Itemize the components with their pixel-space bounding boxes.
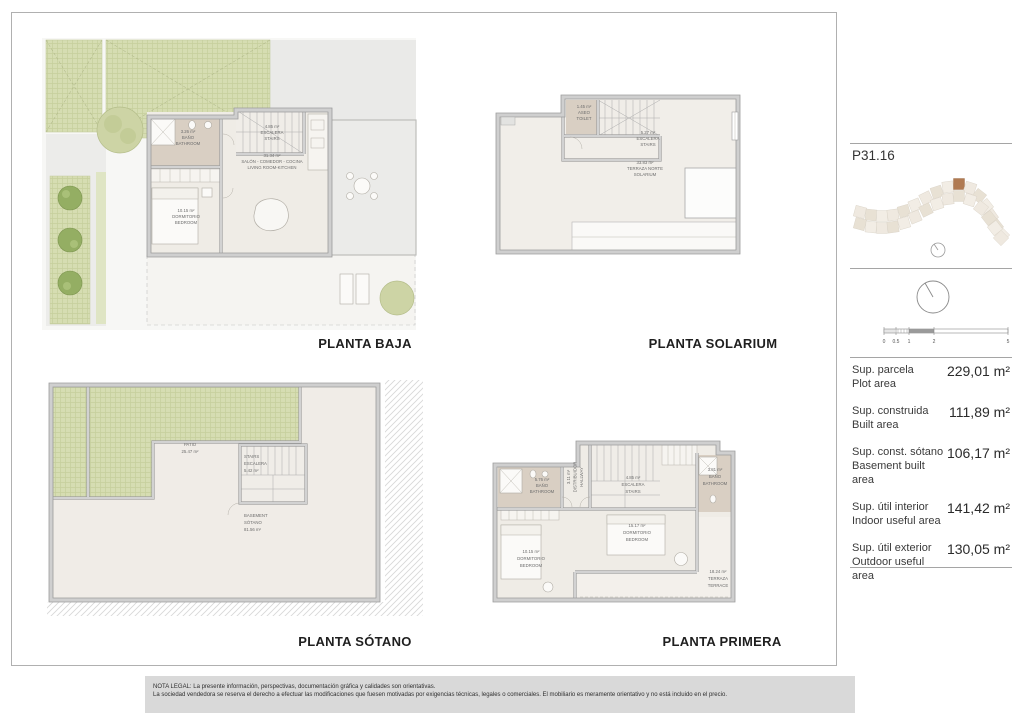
tree	[97, 107, 143, 153]
area-row-outdoor-useful: Sup. útil exterior Outdoor useful area 1…	[852, 541, 1010, 583]
area-row-indoor-useful: Sup. útil interior Indoor useful area 14…	[852, 500, 1010, 528]
tree	[380, 281, 414, 315]
room-label-es: BAÑO	[536, 483, 549, 488]
area-label-en: Built area	[852, 418, 928, 432]
room-label-es: BAÑO	[182, 135, 195, 140]
room-label-en: LIVING ROOM-KITCHEN	[248, 165, 297, 170]
room-label-area: 5.42 m²	[244, 468, 259, 473]
room-label-es: SALÓN - COMEDOR - COCINA	[241, 159, 302, 164]
area-label-en: Plot area	[852, 377, 914, 391]
room-label-es: ESCALERA	[622, 482, 645, 487]
area-row-built: Sup. construida Built area 111,89 m²	[852, 404, 1010, 432]
title-planta-primera: PLANTA PRIMERA	[597, 634, 847, 649]
room-label-es: ASEO	[578, 110, 591, 115]
room-label-l2: ESCALERA	[244, 461, 267, 466]
sidebar-separator	[850, 567, 1012, 568]
sidebar-separator	[850, 143, 1012, 144]
area-label-es: Sup. parcela	[852, 363, 914, 377]
room-label-area: 3.81 m²	[708, 467, 723, 472]
room-label-en: STAIRS	[625, 489, 640, 494]
highlighted-unit	[954, 179, 965, 190]
legal-note: NOTA LEGAL: La presente información, per…	[145, 676, 855, 713]
room-label-en: BATHROOM	[703, 481, 728, 486]
compass-and-scale: 0 0.5 1 2 5	[850, 270, 1014, 355]
plan-planta-primera: 5.76 m² BAÑO BATHROOM 3.11 m² DISTRIBUID…	[485, 437, 757, 609]
sotano-building	[47, 380, 423, 616]
scale-tick-label: 1	[908, 339, 911, 345]
sidebar-separator	[850, 268, 1012, 269]
scale-bar: 0 0.5 1 2 5	[883, 327, 1010, 345]
north-arrow-icon	[917, 281, 949, 313]
area-row-plot: Sup. parcela Plot area 229,01 m²	[852, 363, 1010, 391]
room-label-area: 4.85 m²	[265, 124, 280, 129]
plan-planta-solarium: 1.45 m² ASEO TOILET 5.27 m² ESCALERA STA…	[460, 80, 760, 280]
room-label-es: TERRAZA	[708, 576, 728, 581]
room-label-en: TOILET	[577, 116, 592, 121]
area-label-en: Basement built area	[852, 459, 947, 487]
room-label-en: SOLARIUM	[634, 172, 657, 177]
room-label-area: 81.56 m²	[244, 527, 262, 532]
area-label-es: Sup. const. sótano	[852, 445, 947, 459]
room-label-area: 1.45 m²	[577, 104, 592, 109]
area-value: 141,42 m²	[947, 500, 1010, 516]
area-value: 106,17 m²	[947, 445, 1010, 461]
room-label-es: DORMITORIO	[517, 556, 546, 561]
room-label-area: 15.17 m²	[629, 523, 647, 528]
scale-tick-label: 5	[1007, 339, 1010, 345]
room-label-es: DISTRIBUIDOR	[573, 462, 578, 493]
primera-building	[495, 443, 733, 600]
room-label-area: 18.24 m²	[710, 569, 728, 574]
area-label-en: Indoor useful area	[852, 514, 941, 528]
room-label-es: BAÑO	[709, 474, 722, 479]
solarium-building	[498, 97, 738, 252]
room-label-area: 31.34 m²	[264, 153, 282, 158]
room-label-en: HALLWAY	[579, 467, 584, 487]
room-label-es: DORMITORIO	[172, 214, 201, 219]
scale-tick-label: 2	[933, 339, 936, 345]
room-label-en: BATHROOM	[530, 489, 555, 494]
site-plan-locator	[850, 162, 1014, 268]
title-planta-baja: PLANTA BAJA	[240, 336, 490, 351]
bush	[58, 228, 82, 252]
room-label-en: TERRACE	[708, 583, 729, 588]
room-label-es: PATIO	[184, 442, 197, 447]
room-label-area: 5.76 m²	[535, 477, 550, 482]
area-row-basement-built: Sup. const. sótano Basement built area 1…	[852, 445, 1010, 487]
room-label-l2: SÓTANO	[244, 520, 262, 525]
room-label-en: BATHROOM	[176, 141, 201, 146]
room-label-area: 10.15 m²	[178, 208, 196, 213]
area-value: 229,01 m²	[947, 363, 1010, 379]
room-label-area: 5.27 m²	[641, 130, 656, 135]
room-label-en: BEDROOM	[520, 563, 543, 568]
title-planta-solarium: PLANTA SOLARIUM	[588, 336, 838, 351]
sidebar-separator	[850, 357, 1012, 358]
area-value: 111,89 m²	[949, 404, 1010, 420]
area-label-en: Outdoor useful area	[852, 555, 947, 583]
room-label-l1: BASEMENT	[244, 513, 268, 518]
room-label-area: 4.85 m²	[626, 475, 641, 480]
unit-chain	[853, 179, 1010, 246]
legal-note-line2: La sociedad vendedora se reserva el dere…	[153, 692, 855, 700]
unit-code: P31.16	[852, 148, 895, 163]
room-label-en: BEDROOM	[175, 220, 198, 225]
room-label-es: DORMITORIO	[623, 530, 652, 535]
room-label-area: 25.47 m²	[182, 449, 200, 454]
area-label-es: Sup. útil exterior	[852, 541, 947, 555]
wall-tag	[501, 117, 515, 125]
room-label-es: ESCALERA	[637, 136, 660, 141]
room-label-area: 10.15 m²	[523, 549, 541, 554]
room-label-en: STAIRS	[640, 142, 655, 147]
area-label-es: Sup. útil interior	[852, 500, 941, 514]
legal-note-line1: NOTA LEGAL: La presente información, per…	[153, 684, 855, 692]
area-value: 130,05 m²	[947, 541, 1010, 557]
area-label-es: Sup. construida	[852, 404, 928, 418]
bush	[58, 271, 82, 295]
plan-planta-sotano: PATIO 25.47 m² STAIRS ESCALERA 5.42 m² B…	[33, 370, 425, 620]
mini-north-arrow-icon	[931, 243, 945, 257]
bush	[58, 186, 82, 210]
scale-tick-label: 0	[883, 339, 886, 345]
title-planta-sotano: PLANTA SÓTANO	[230, 634, 480, 649]
room-label-l1: STAIRS	[244, 454, 259, 459]
scale-tick-label: 0.5	[893, 339, 900, 345]
area-summary: Sup. parcela Plot area 229,01 m² Sup. co…	[852, 363, 1010, 583]
room-label-es: ESCALERA	[261, 130, 284, 135]
room-label-en: BEDROOM	[626, 537, 649, 542]
room-label-area: 3.26 m²	[181, 129, 196, 134]
room-label-en: STAIRS	[264, 136, 279, 141]
plan-planta-baja: 3.26 m² BAÑO BATHROOM 4.85 m² ESCALERA S…	[40, 36, 420, 332]
room-label-es: TERRAZA NORTE	[627, 166, 663, 171]
room-label-area: 3.11 m²	[566, 469, 571, 484]
room-label-area: 33.83 m²	[637, 160, 655, 165]
